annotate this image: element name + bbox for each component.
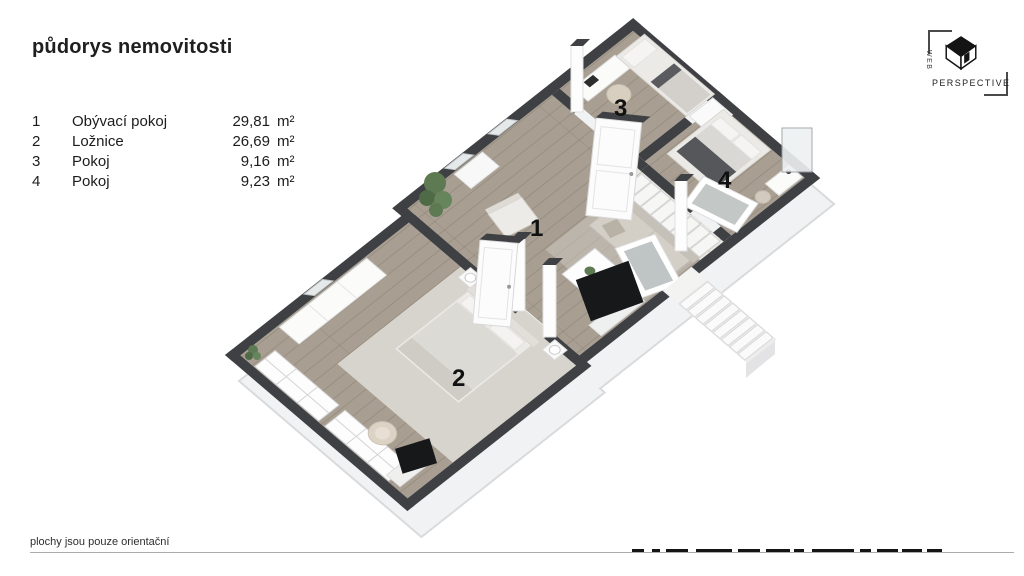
room-label-3: 3 [614, 95, 627, 122]
floor-plan-canvas: 1 2 3 4 [0, 0, 1024, 576]
room-label-2: 2 [452, 365, 465, 392]
vanity-mirror [782, 128, 812, 172]
page: půdorys nemovitosti 1 Obývací pokoj 29,8… [0, 0, 1024, 576]
room-label-4: 4 [718, 167, 732, 194]
room-label-1: 1 [530, 215, 543, 242]
disclaimer-note: plochy jsou pouze orientační [30, 536, 169, 548]
footer-rule [30, 552, 1014, 553]
